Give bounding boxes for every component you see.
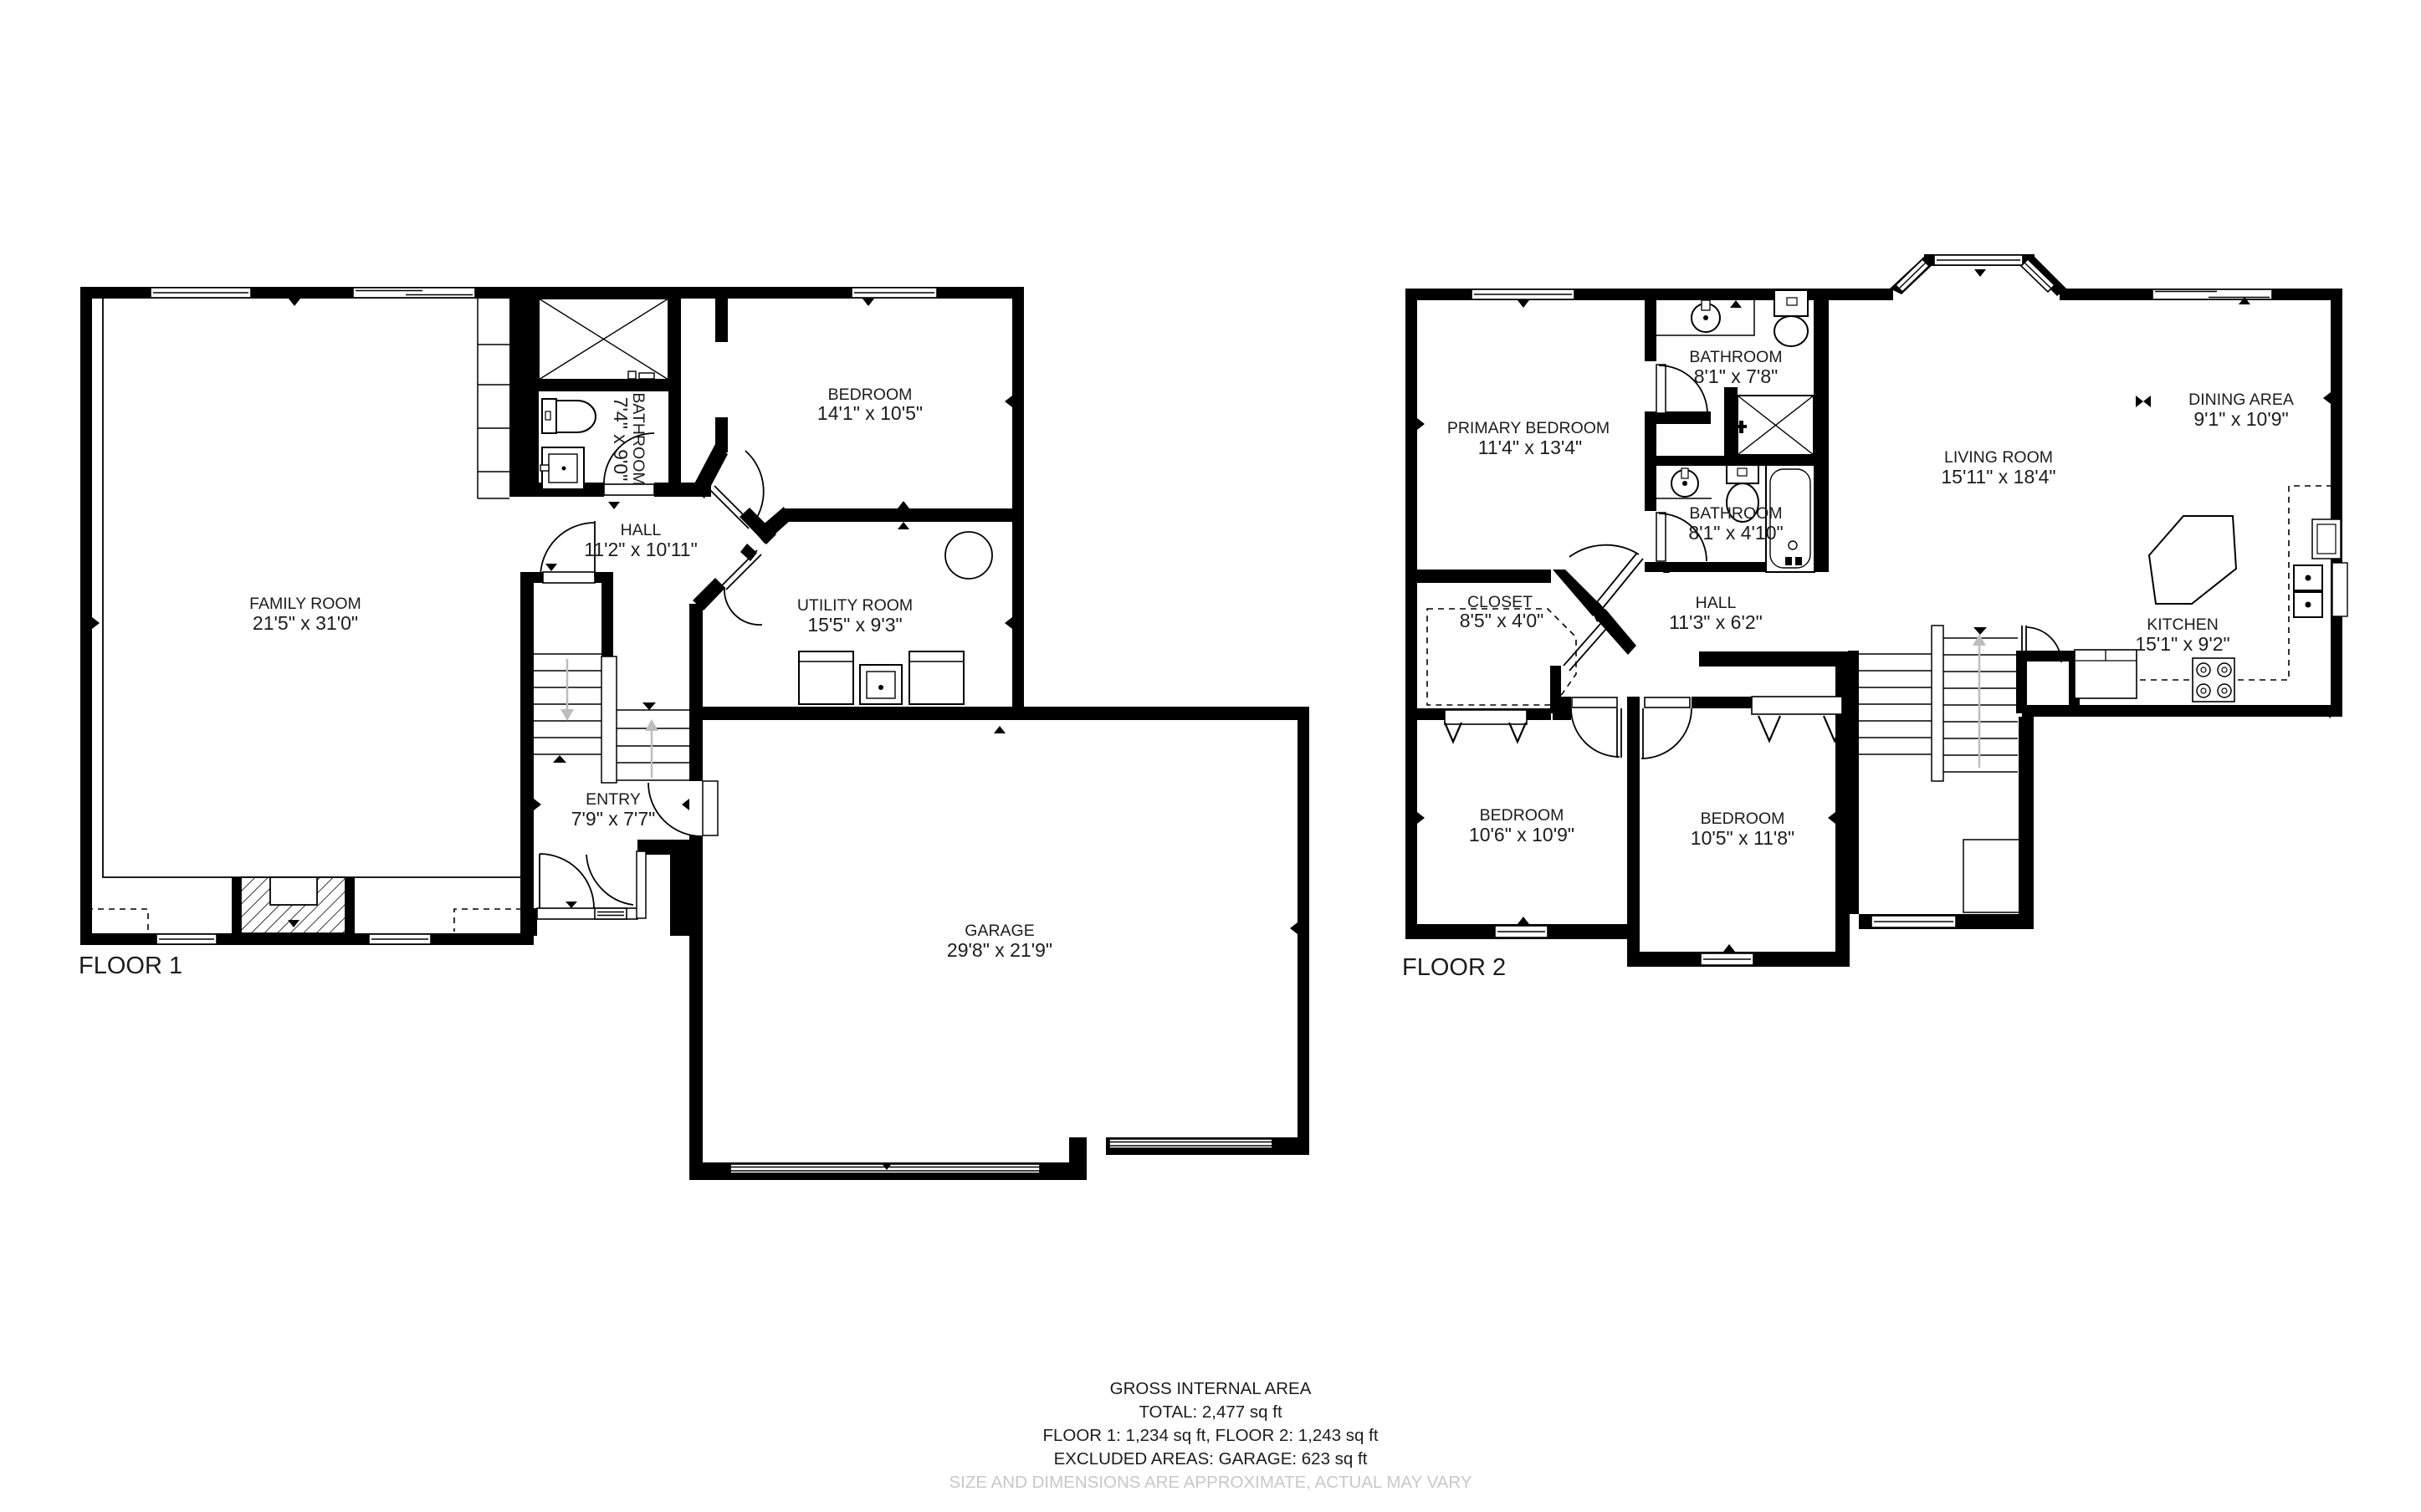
svg-text:8'1" x 4'10": 8'1" x 4'10": [1688, 522, 1783, 544]
svg-text:29'8" x 21'9": 29'8" x 21'9": [947, 939, 1052, 961]
svg-text:HALL: HALL: [1696, 594, 1737, 612]
svg-text:11'3" x 6'2": 11'3" x 6'2": [1669, 611, 1763, 633]
svg-text:KITCHEN: KITCHEN: [2147, 616, 2219, 634]
svg-text:21'5" x 31'0": 21'5" x 31'0": [253, 612, 358, 634]
svg-text:7'9" x 7'7": 7'9" x 7'7": [571, 808, 656, 830]
svg-text:8'1" x 7'8": 8'1" x 7'8": [1694, 365, 1779, 387]
svg-text:FAMILY ROOM: FAMILY ROOM: [249, 595, 361, 613]
svg-text:GROSS INTERNAL AREA: GROSS INTERNAL AREA: [1110, 1379, 1312, 1398]
svg-text:11'2" x 10'11": 11'2" x 10'11": [584, 539, 698, 560]
svg-text:7'4" x 9'0": 7'4" x 9'0": [610, 397, 632, 482]
svg-text:BEDROOM: BEDROOM: [1701, 810, 1785, 828]
svg-text:ENTRY: ENTRY: [586, 790, 641, 809]
svg-text:BEDROOM: BEDROOM: [1480, 806, 1564, 825]
svg-text:15'1" x 9'2": 15'1" x 9'2": [2135, 633, 2229, 655]
svg-text:10'6" x 10'9": 10'6" x 10'9": [1469, 824, 1574, 845]
svg-text:8'5" x 4'0": 8'5" x 4'0": [1460, 610, 1544, 631]
svg-text:UTILITY ROOM: UTILITY ROOM: [797, 596, 913, 615]
svg-text:15'5" x 9'3": 15'5" x 9'3": [807, 614, 902, 636]
svg-text:BEDROOM: BEDROOM: [828, 386, 913, 404]
svg-text:FLOOR 1: FLOOR 1: [79, 953, 182, 979]
svg-text:BATHROOM: BATHROOM: [1689, 348, 1782, 366]
svg-text:11'4" x 13'4": 11'4" x 13'4": [1478, 437, 1582, 458]
svg-text:15'11" x 18'4": 15'11" x 18'4": [1941, 466, 2055, 488]
svg-text:EXCLUDED AREAS: GARAGE: 623 sq: EXCLUDED AREAS: GARAGE: 623 sq ft: [1054, 1449, 1368, 1469]
svg-text:10'5" x 11'8": 10'5" x 11'8": [1691, 827, 1794, 849]
svg-text:DINING AREA: DINING AREA: [2188, 391, 2294, 409]
svg-text:PRIMARY BEDROOM: PRIMARY BEDROOM: [1447, 419, 1610, 437]
svg-text:SIZE AND DIMENSIONS ARE APPROX: SIZE AND DIMENSIONS ARE APPROXIMATE, ACT…: [949, 1473, 1472, 1492]
svg-text:TOTAL: 2,477 sq ft: TOTAL: 2,477 sq ft: [1139, 1402, 1282, 1422]
svg-text:FLOOR 2: FLOOR 2: [1402, 954, 1506, 981]
svg-text:FLOOR 1: 1,234 sq ft, FLOOR 2:: FLOOR 1: 1,234 sq ft, FLOOR 2: 1,243 sq …: [1042, 1426, 1378, 1445]
svg-text:GARAGE: GARAGE: [965, 922, 1034, 940]
svg-text:HALL: HALL: [621, 521, 662, 539]
svg-text:9'1" x 10'9": 9'1" x 10'9": [2193, 408, 2288, 430]
svg-text:BATHROOM: BATHROOM: [1689, 504, 1782, 523]
svg-text:14'1" x 10'5": 14'1" x 10'5": [817, 402, 923, 424]
svg-text:LIVING ROOM: LIVING ROOM: [1944, 448, 2053, 467]
svg-text:CLOSET: CLOSET: [1467, 593, 1533, 611]
